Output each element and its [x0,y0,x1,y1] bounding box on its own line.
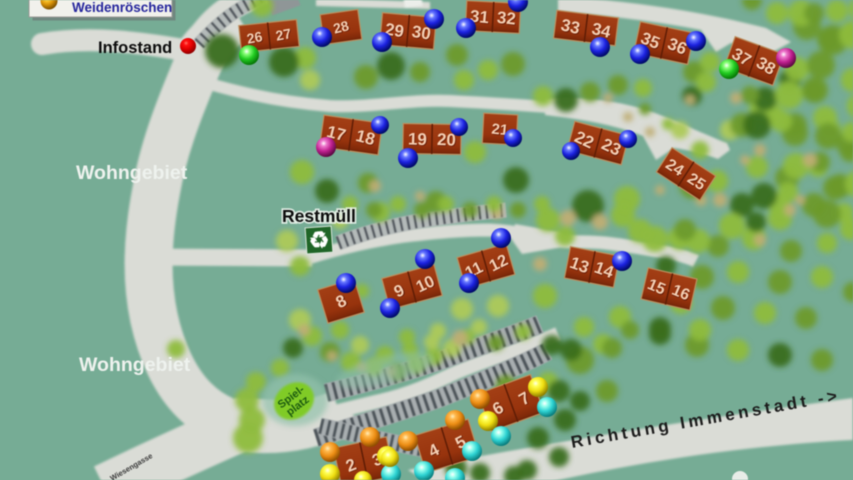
svg-text:33: 33 [559,15,582,38]
svg-text:Restmüll: Restmüll [282,206,356,226]
svg-text:32: 32 [496,8,517,29]
svg-text:27: 27 [274,25,293,44]
svg-text:26: 26 [245,28,264,47]
svg-text:Infostand: Infostand [98,39,172,57]
svg-text:19: 19 [408,130,428,150]
svg-text:♻: ♻ [308,226,330,253]
svg-text:Weidenröschen: Weidenröschen [72,0,172,15]
svg-text:Wohngebiet: Wohngebiet [76,162,188,184]
svg-text:Wohngebiet: Wohngebiet [79,354,191,376]
